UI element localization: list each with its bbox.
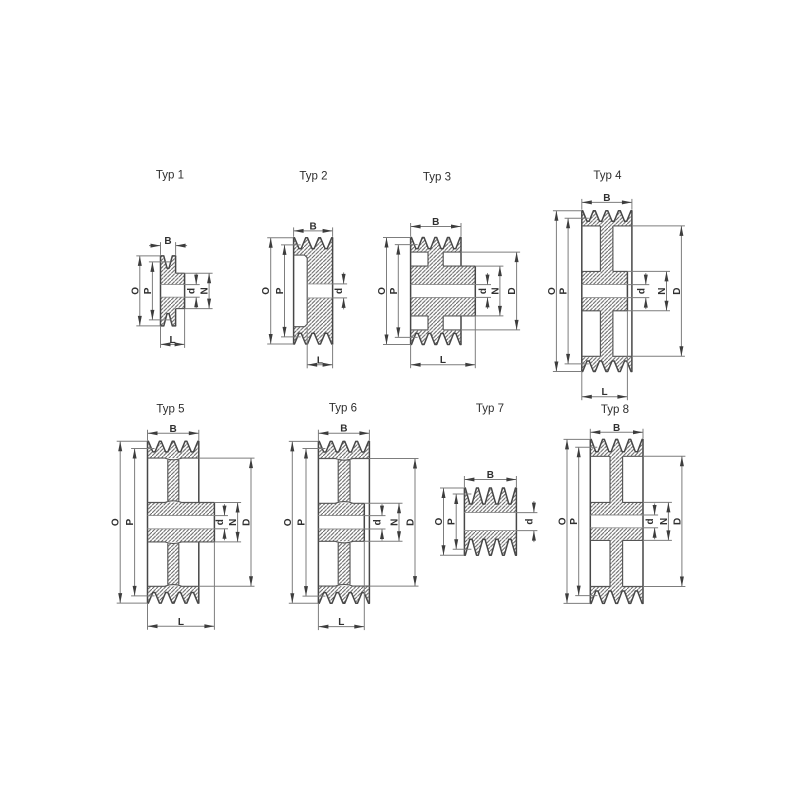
svg-text:O: O [434,517,445,525]
svg-text:N: N [228,519,239,526]
svg-text:D: D [406,519,417,526]
svg-text:D: D [507,287,518,294]
svg-text:d: d [334,288,345,294]
svg-text:P: P [559,287,570,294]
svg-text:L: L [440,355,446,366]
svg-text:Typ 4: Typ 4 [593,170,622,182]
svg-text:O: O [111,518,122,526]
svg-text:Typ 1: Typ 1 [156,169,184,181]
svg-text:O: O [377,287,388,295]
svg-text:Typ 2: Typ 2 [299,171,327,183]
svg-text:N: N [390,519,401,526]
svg-text:B: B [432,217,439,228]
svg-text:B: B [613,423,620,434]
svg-text:d: d [373,519,384,525]
svg-text:L: L [317,355,323,366]
svg-text:P: P [447,518,458,525]
svg-text:N: N [490,287,501,294]
svg-text:O: O [283,518,294,526]
svg-text:O: O [558,517,569,525]
svg-text:d: d [524,519,535,525]
svg-text:d: d [636,288,647,294]
svg-text:L: L [178,617,184,628]
svg-text:Typ 7: Typ 7 [476,403,504,415]
svg-text:d: d [187,288,198,294]
svg-text:d: d [478,288,489,294]
svg-text:O: O [130,287,141,295]
svg-text:B: B [170,424,177,435]
svg-text:P: P [389,287,400,294]
svg-text:N: N [200,287,211,294]
svg-text:L: L [169,335,175,346]
svg-text:P: P [275,287,286,294]
svg-text:d: d [215,519,226,525]
svg-text:P: P [297,519,308,526]
svg-text:L: L [338,617,344,628]
svg-text:N: N [659,518,670,525]
svg-text:d: d [645,518,656,524]
svg-text:D: D [672,287,683,294]
svg-text:O: O [261,287,272,295]
svg-text:P: P [143,287,154,294]
svg-text:Typ 3: Typ 3 [423,172,451,184]
svg-text:D: D [242,519,253,526]
svg-text:L: L [602,387,608,398]
svg-text:B: B [487,470,494,481]
svg-text:N: N [657,287,668,294]
svg-text:Typ 6: Typ 6 [329,403,357,415]
svg-text:Typ 8: Typ 8 [601,404,629,416]
svg-text:Typ 5: Typ 5 [156,404,184,416]
svg-text:P: P [125,519,136,526]
svg-text:B: B [603,193,610,204]
svg-text:O: O [547,287,558,295]
svg-text:B: B [164,236,171,247]
svg-text:B: B [309,221,316,232]
svg-text:B: B [340,424,347,435]
svg-text:P: P [569,518,580,525]
svg-text:D: D [672,518,683,525]
